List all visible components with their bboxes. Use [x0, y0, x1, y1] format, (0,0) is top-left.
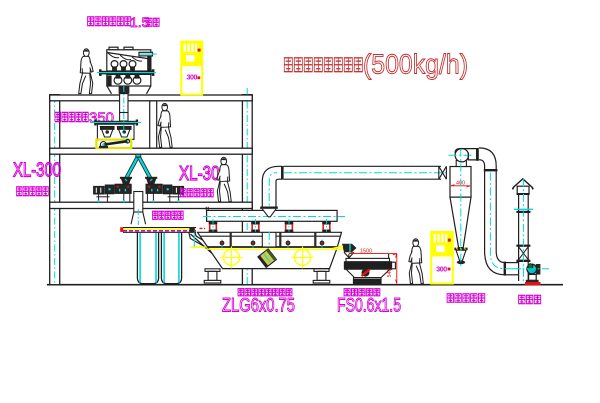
svg-text:540: 540: [387, 269, 393, 278]
svg-text:1500: 1500: [360, 249, 372, 255]
svg-text:XL-300: XL-300: [13, 160, 61, 182]
svg-text:FS0.6x1.5: FS0.6x1.5: [337, 296, 401, 317]
svg-text:300: 300: [436, 267, 447, 274]
svg-text:(500kg/h): (500kg/h): [363, 49, 468, 80]
svg-text:300: 300: [187, 75, 198, 82]
svg-text:ZLG6x0.75: ZLG6x0.75: [222, 296, 295, 317]
